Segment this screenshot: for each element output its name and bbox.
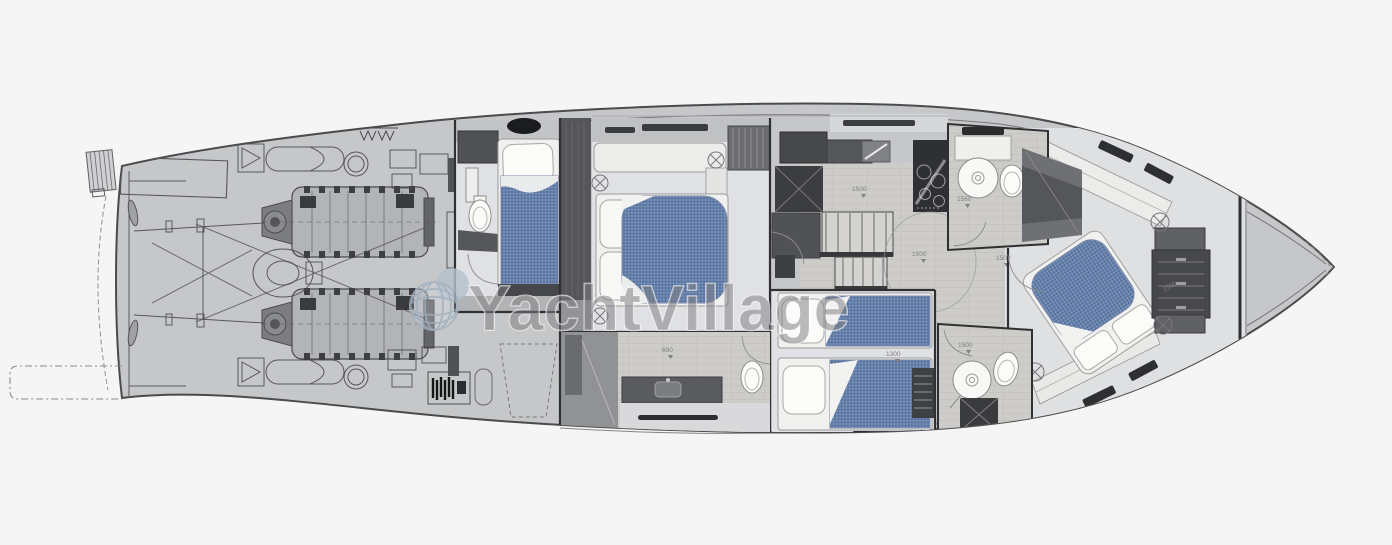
swim-platform <box>10 196 122 399</box>
wardrobe <box>728 126 770 170</box>
dimension-label-vip-bathroom: 1560 <box>957 196 972 203</box>
vanity-top <box>955 136 1011 160</box>
stair-upper-run <box>822 212 893 256</box>
cooktop <box>913 140 948 212</box>
deck-hatch <box>507 118 541 134</box>
swim-ladder <box>86 150 117 197</box>
twin-bed-lower <box>778 358 932 430</box>
window-slot <box>605 127 635 133</box>
dimension-label-hallway: 1500 <box>912 251 927 258</box>
sink <box>655 382 681 397</box>
watermark: YachtVillage <box>410 268 850 344</box>
dimension-label-twin-cabin: 1300 <box>886 351 901 358</box>
drawer-handle <box>638 415 718 420</box>
window-slot <box>843 120 915 126</box>
stair-cabinet <box>772 213 820 258</box>
galley-cabinet <box>780 132 827 163</box>
crew-berth <box>498 139 560 289</box>
sink <box>958 158 998 198</box>
toilet <box>741 361 763 393</box>
floor-hatch <box>775 166 823 212</box>
yacht-floorplan: 690 <box>0 0 1392 545</box>
day-head: 1500 <box>938 324 1032 432</box>
galley-sink <box>862 141 890 162</box>
dimension-label-master-bathroom: 690 <box>662 347 673 354</box>
toilet <box>1000 165 1024 197</box>
dimension-label-galley: 1500 <box>852 186 867 193</box>
floorplan-canvas: 690 <box>0 0 1392 545</box>
crew-locker <box>458 131 498 163</box>
window-slot <box>962 127 1004 135</box>
watermark-text: YachtVillage <box>468 272 850 344</box>
dimension-label-day-head: 1500 <box>958 342 973 349</box>
master-bathroom: 690 <box>562 332 770 432</box>
bow-drawers <box>1152 228 1210 333</box>
window-slot <box>642 124 708 131</box>
pillow <box>783 366 825 414</box>
